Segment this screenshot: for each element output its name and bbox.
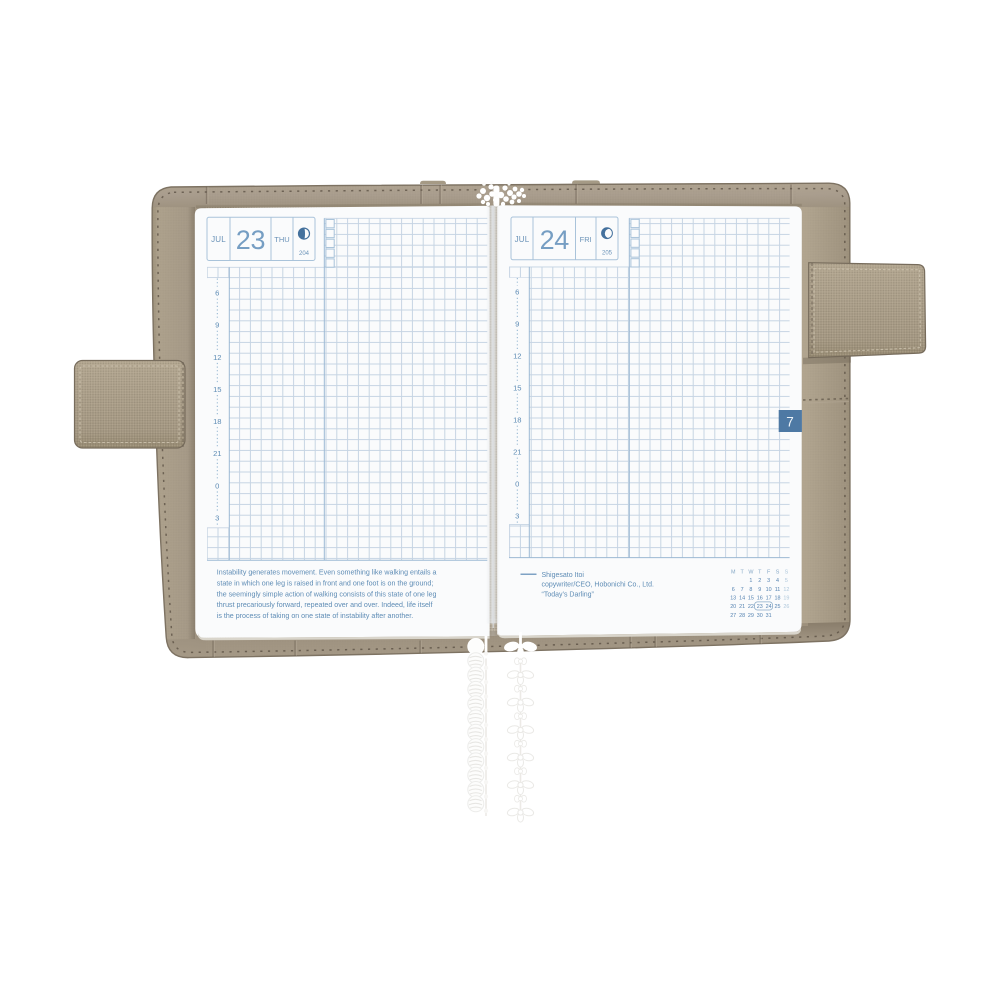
- svg-text:2: 2: [758, 578, 761, 584]
- svg-text:7: 7: [741, 587, 744, 593]
- svg-text:Instability generates movement: Instability generates movement. Even som…: [217, 569, 437, 577]
- svg-text:24: 24: [540, 225, 570, 255]
- svg-text:11: 11: [775, 587, 781, 593]
- svg-text:16: 16: [757, 595, 763, 601]
- svg-text:20: 20: [730, 604, 736, 610]
- svg-text:Shigesato Itoi: Shigesato Itoi: [542, 572, 585, 579]
- svg-text:31: 31: [766, 613, 772, 619]
- svg-text:JUL: JUL: [515, 235, 530, 244]
- svg-text:22: 22: [748, 604, 754, 610]
- svg-text:15: 15: [513, 384, 521, 393]
- svg-text:15: 15: [748, 595, 754, 601]
- svg-text:6: 6: [515, 288, 519, 297]
- svg-text:M: M: [731, 569, 736, 575]
- svg-text:13: 13: [730, 595, 736, 601]
- svg-text:copywriter/CEO, Hobonichi Co.,: copywriter/CEO, Hobonichi Co., Ltd.: [542, 582, 654, 589]
- svg-text:S: S: [776, 569, 780, 575]
- svg-text:3: 3: [215, 513, 219, 522]
- svg-text:17: 17: [766, 595, 772, 601]
- svg-text:state in which one leg is rais: state in which one leg is raised in fron…: [217, 580, 434, 588]
- svg-text:27: 27: [730, 613, 736, 619]
- svg-text:3: 3: [515, 511, 519, 520]
- svg-text:“Today’s Darling”: “Today’s Darling”: [542, 591, 595, 598]
- svg-text:18: 18: [213, 417, 221, 426]
- svg-text:9: 9: [215, 321, 219, 330]
- svg-text:S: S: [785, 569, 789, 575]
- svg-text:0: 0: [215, 481, 219, 490]
- svg-text:THU: THU: [274, 235, 289, 244]
- svg-text:18: 18: [513, 416, 521, 425]
- svg-text:1: 1: [749, 578, 752, 584]
- svg-text:5: 5: [785, 578, 788, 584]
- svg-text:8: 8: [749, 587, 752, 593]
- svg-text:24: 24: [766, 604, 772, 610]
- svg-text:23: 23: [236, 225, 265, 255]
- svg-text:10: 10: [766, 587, 772, 593]
- svg-text:18: 18: [775, 595, 781, 601]
- svg-text:7: 7: [786, 415, 794, 430]
- svg-text:9: 9: [515, 320, 519, 329]
- svg-text:21: 21: [513, 447, 521, 456]
- svg-text:FRI: FRI: [580, 235, 592, 244]
- svg-text:15: 15: [213, 385, 221, 394]
- svg-text:21: 21: [213, 449, 221, 458]
- svg-text:205: 205: [602, 251, 613, 257]
- svg-text:is the process of taking on on: is the process of taking on one state of…: [217, 612, 413, 620]
- svg-text:JUL: JUL: [211, 235, 226, 244]
- svg-text:12: 12: [213, 353, 221, 362]
- svg-text:12: 12: [783, 587, 789, 593]
- svg-text:21: 21: [739, 604, 745, 610]
- svg-text:23: 23: [757, 604, 763, 610]
- svg-text:14: 14: [739, 595, 745, 601]
- svg-text:25: 25: [775, 604, 781, 610]
- svg-text:thrust precariously forward, r: thrust precariously forward, repeated ov…: [217, 601, 433, 609]
- svg-text:19: 19: [783, 595, 789, 601]
- svg-text:204: 204: [299, 251, 310, 257]
- svg-text:29: 29: [748, 613, 754, 619]
- svg-text:26: 26: [783, 604, 789, 610]
- svg-text:30: 30: [757, 613, 763, 619]
- svg-text:0: 0: [515, 479, 519, 488]
- svg-text:12: 12: [513, 352, 521, 361]
- svg-text:9: 9: [758, 587, 761, 593]
- svg-text:28: 28: [739, 613, 745, 619]
- svg-text:4: 4: [776, 578, 779, 584]
- svg-text:the seemingly simple action of: the seemingly simple action of walking c…: [217, 590, 437, 598]
- svg-text:3: 3: [767, 578, 770, 584]
- svg-text:6: 6: [215, 289, 219, 298]
- svg-text:6: 6: [732, 587, 735, 593]
